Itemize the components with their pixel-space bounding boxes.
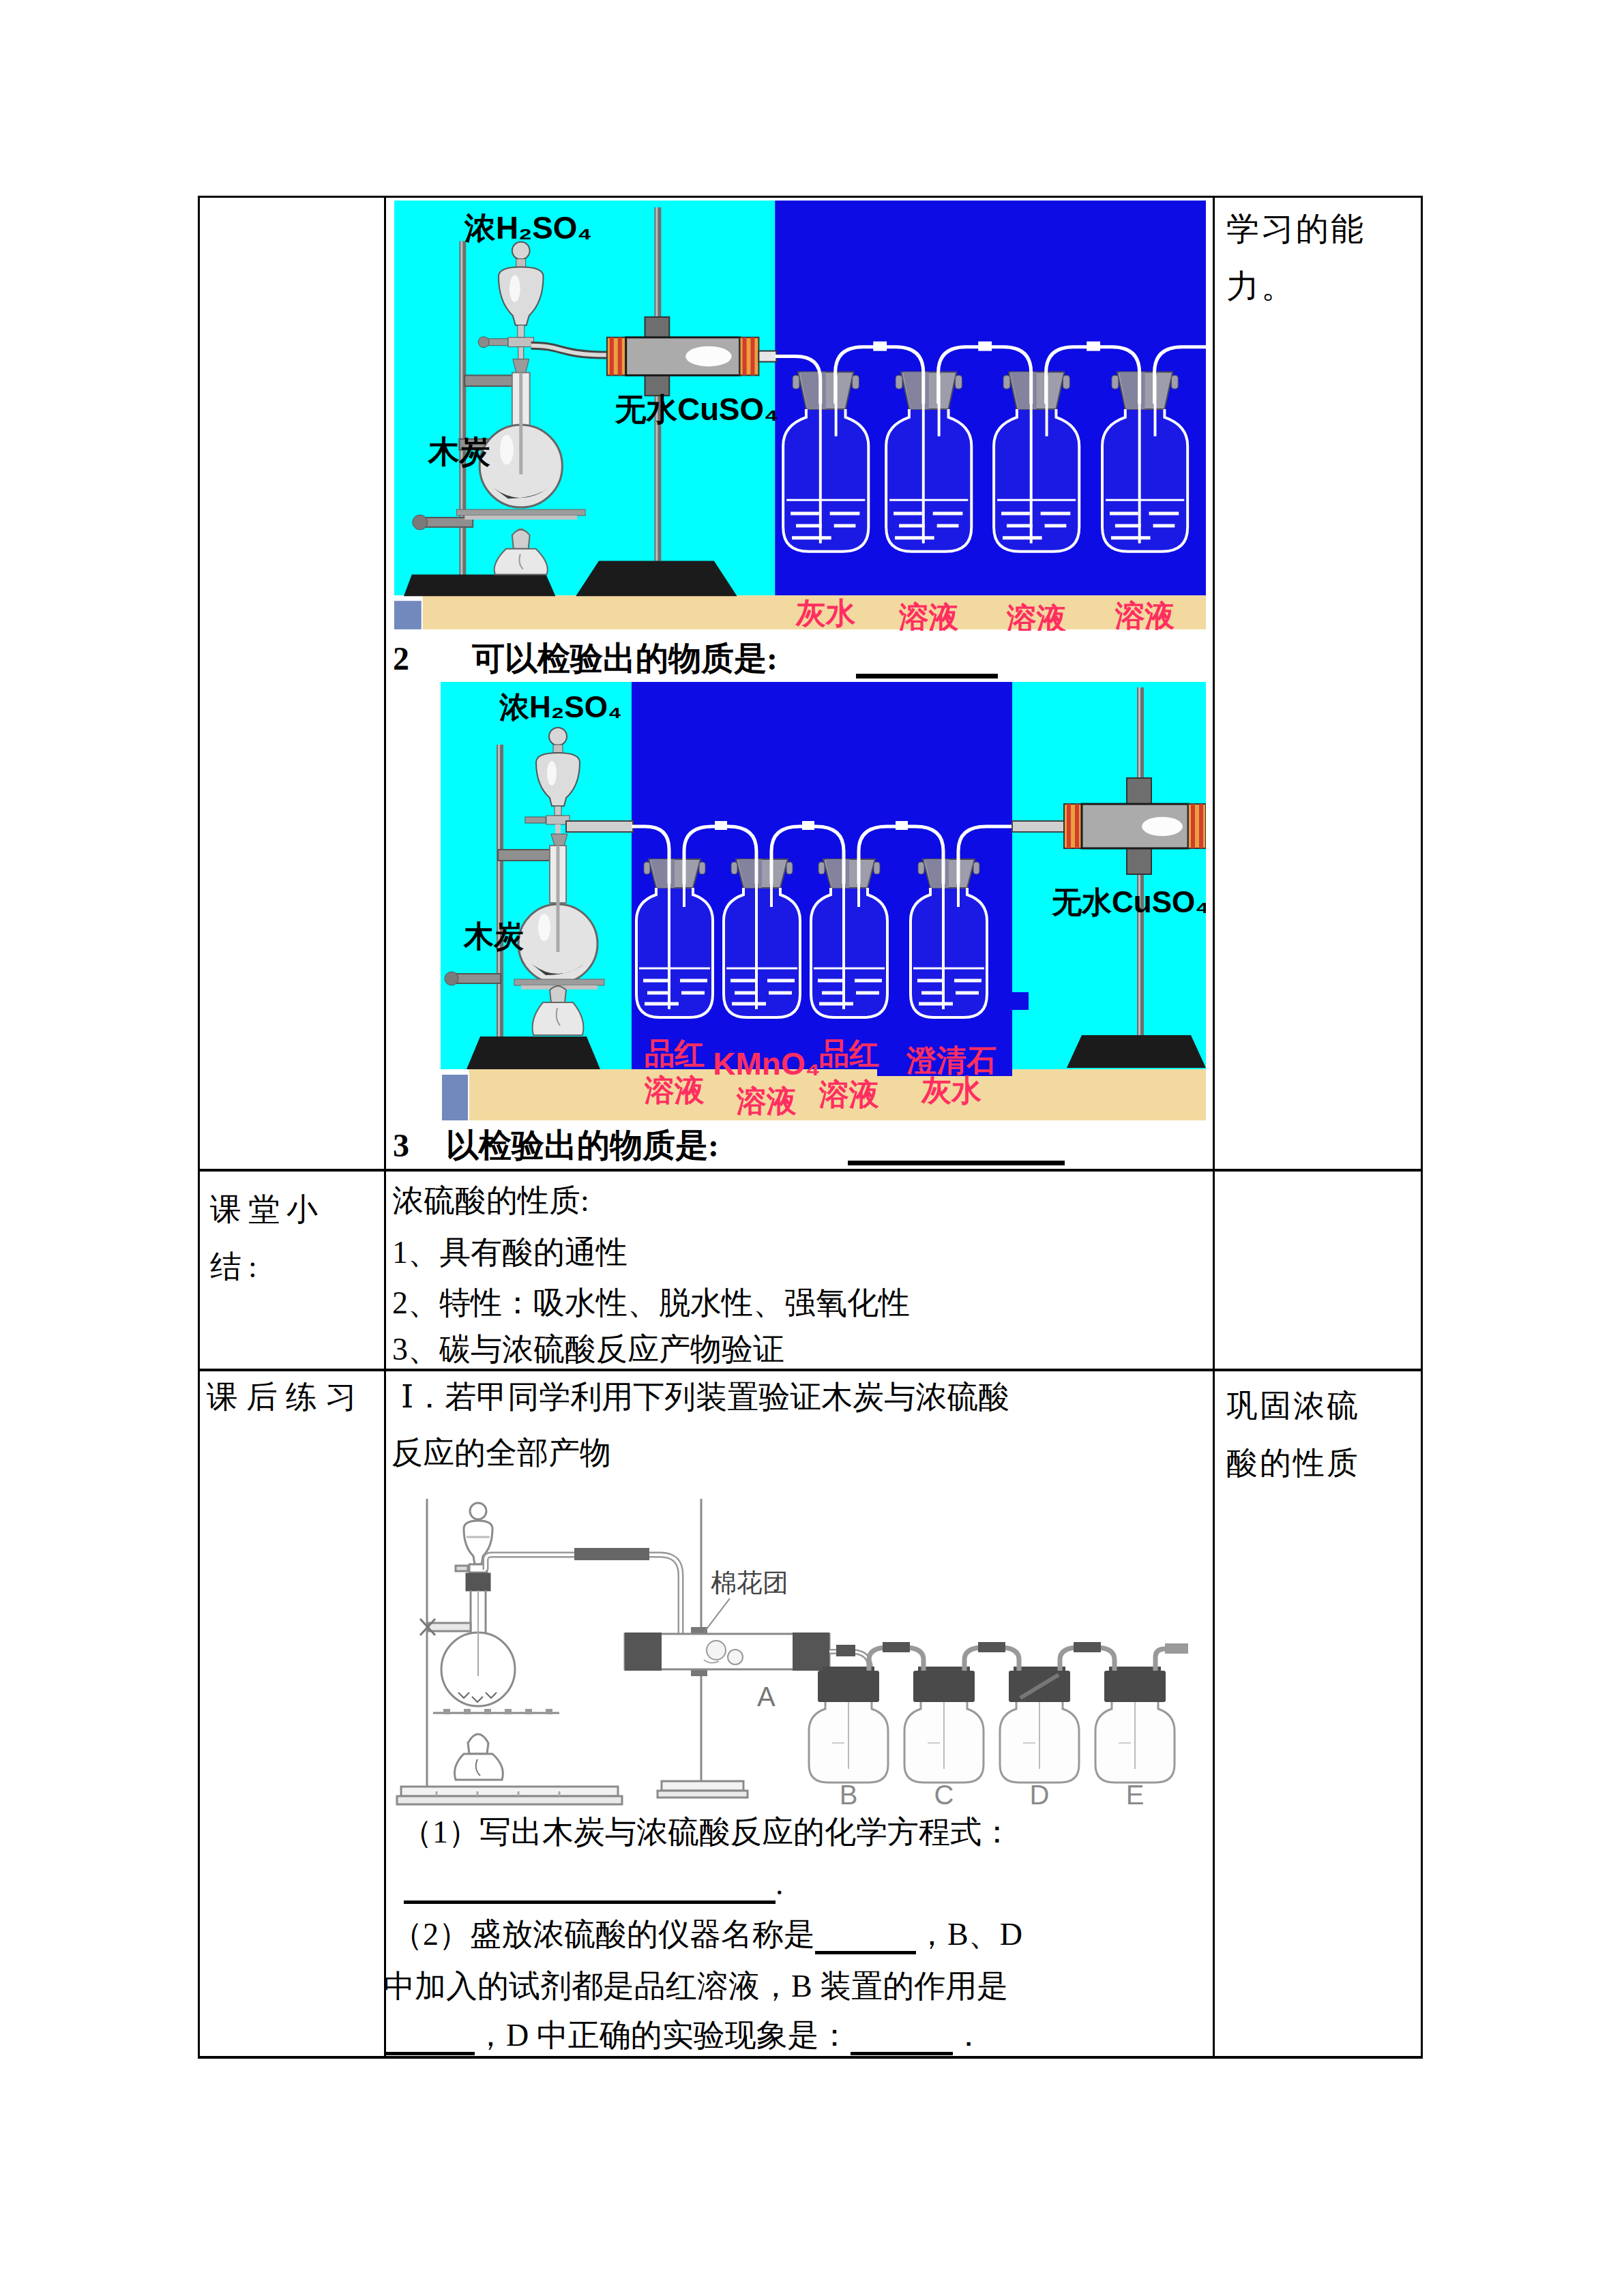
table-row-separator-1 — [198, 1169, 1423, 1172]
bottle-C — [904, 1667, 984, 1783]
q4-period: ． — [953, 2018, 984, 2053]
q2-answer-blank — [856, 641, 998, 679]
charcoal-label: 木炭 — [428, 434, 491, 469]
q2-label: 可以检验出的物质是: — [472, 638, 778, 679]
q3-number: 3 — [393, 1125, 409, 1166]
blue-outlet-tab — [1012, 992, 1029, 1010]
cuso4-label: 无水CuSO₄ — [1051, 885, 1206, 919]
cuso4-tube — [607, 338, 776, 376]
bottle3-label-top: 品红 — [819, 1037, 879, 1070]
bottle-E-label: E — [1126, 1780, 1145, 1807]
bottle3-label-bottom: 溶液 — [818, 1077, 879, 1111]
summary-line-1: 浓硫酸的性质: — [392, 1181, 589, 1221]
tube-joint — [978, 342, 992, 351]
bottle-D-label: D — [1030, 1780, 1050, 1807]
table-border-left — [198, 196, 200, 2058]
question-1-answer-line: . — [404, 1864, 784, 1904]
table-border-top — [198, 196, 1423, 198]
bottle4-label-bottom: 溶液 — [1114, 599, 1175, 631]
cotton-label: 棉花团 — [711, 1568, 788, 1597]
bottle-C-label: C — [934, 1780, 954, 1807]
row2-header: 课堂小结: — [210, 1181, 353, 1296]
q3-answer-blank — [848, 1128, 1065, 1165]
tube-joint — [715, 821, 727, 830]
summary-line-4: 3、碳与浓硫酸反应产物验证 — [392, 1330, 784, 1369]
slate-square — [442, 1075, 468, 1120]
table-col-separator-1 — [384, 196, 386, 2058]
acid-label: 浓H₂SO₄ — [499, 690, 622, 724]
exercise-intro-line2: 反应的全部产物 — [392, 1433, 611, 1473]
table-col-separator-2 — [1213, 196, 1215, 2058]
question-1: （1）写出木炭与浓硫酸反应的化学方程式： — [401, 1813, 1013, 1852]
cuso4-tube — [1064, 804, 1206, 848]
bottle2-label-bottom: 溶液 — [898, 600, 959, 631]
table-border-bottom — [198, 2056, 1423, 2059]
summary-line-2: 1、具有酸的通性 — [392, 1233, 628, 1272]
delivery-tube — [486, 1548, 681, 1634]
bottle2-label-bottom: 溶液 — [736, 1084, 797, 1118]
table-border-right — [1421, 196, 1423, 2058]
bottle-B — [809, 1667, 888, 1783]
connector-tube-right — [1012, 821, 1064, 832]
exercise-intro-line1: Ⅰ．若甲同学利用下列装置验证木炭与浓硫酸 — [401, 1377, 1009, 1417]
q3-label: 以检验出的物质是: — [446, 1125, 719, 1166]
q2-answer-blank-3 — [851, 2022, 953, 2055]
row1-right-note: 学习的能力。 — [1226, 200, 1398, 315]
tube-joint — [873, 342, 887, 351]
bottle1-label-top: 品红 — [645, 1037, 705, 1070]
question-2-line-3: ，D 中正确的实验现象是：． — [385, 2016, 984, 2055]
summary-line-3: 2、特性：吸水性、脱水性、强氧化性 — [392, 1283, 910, 1323]
q2-answer-blank-2 — [385, 2022, 475, 2055]
experiment-diagram-2: 浓H₂SO₄ 木炭 — [441, 682, 1206, 1120]
q4-mid-text: ，D 中正确的实验现象是： — [475, 2018, 851, 2053]
bottle-B-label: B — [840, 1780, 858, 1807]
connector-tube-left — [566, 821, 633, 832]
document-page: 学习的能力。 — [0, 0, 1624, 2296]
acid-label: 浓H₂SO₄ — [464, 211, 592, 245]
band-gap — [394, 595, 423, 601]
cotton-leader-line — [704, 1598, 730, 1632]
bottle3-label-bottom: 溶液 — [1006, 601, 1067, 631]
cyan-background-left — [441, 682, 632, 1069]
tube-joint — [802, 821, 814, 830]
q1-period: . — [776, 1866, 784, 1901]
bottle4-label-bottom: 灰水 — [921, 1073, 981, 1107]
q2-number: 2 — [393, 638, 409, 679]
cyan-background-right — [1012, 682, 1206, 1069]
tube-joint — [1087, 342, 1100, 351]
tube-joint — [896, 821, 908, 830]
charcoal-label: 木炭 — [463, 919, 524, 953]
row3-right-note: 巩固浓硫酸的性质 — [1226, 1377, 1393, 1492]
question-2-line: （2）盛放浓硫酸的仪器名称是，B、D — [392, 1915, 1022, 1954]
combustion-tube-A — [625, 1627, 829, 1676]
bottle1-label-bottom: 溶液 — [644, 1073, 705, 1107]
bottle1-label-bottom: 灰水 — [795, 596, 856, 629]
bottle-E — [1095, 1667, 1175, 1783]
experiment-diagram-1: 浓H₂SO₄ 木炭 无水CuSO₄ — [394, 199, 1206, 631]
q2-answer-blank-1 — [815, 1921, 916, 1954]
row3-header: 课后练习 — [207, 1377, 365, 1417]
inter-bottle-tubes — [869, 1642, 1188, 1671]
flask-and-lamp — [420, 1574, 559, 1780]
bottle4-label-top: 澄清石 — [906, 1043, 996, 1077]
exercise-diagram: 棉花团 A — [396, 1493, 1197, 1807]
question-2-line-2: 中加入的试剂都是品红溶液，B 装置的作用是 — [383, 1967, 1008, 2006]
tube-A-label: A — [757, 1682, 776, 1712]
cuso4-label: 无水CuSO₄ — [615, 392, 779, 427]
bottle-D — [1000, 1667, 1079, 1783]
q2-mid-text: ，B、D — [916, 1917, 1022, 1952]
wire-gauze — [456, 509, 585, 520]
bottle2-label-top: KMnO₄ — [713, 1046, 820, 1082]
q2-prefix-text: （2）盛放浓硫酸的仪器名称是 — [392, 1917, 815, 1952]
slate-square — [394, 601, 422, 629]
table-row-separator-2 — [198, 1369, 1423, 1371]
q1-answer-blank — [404, 1870, 776, 1904]
